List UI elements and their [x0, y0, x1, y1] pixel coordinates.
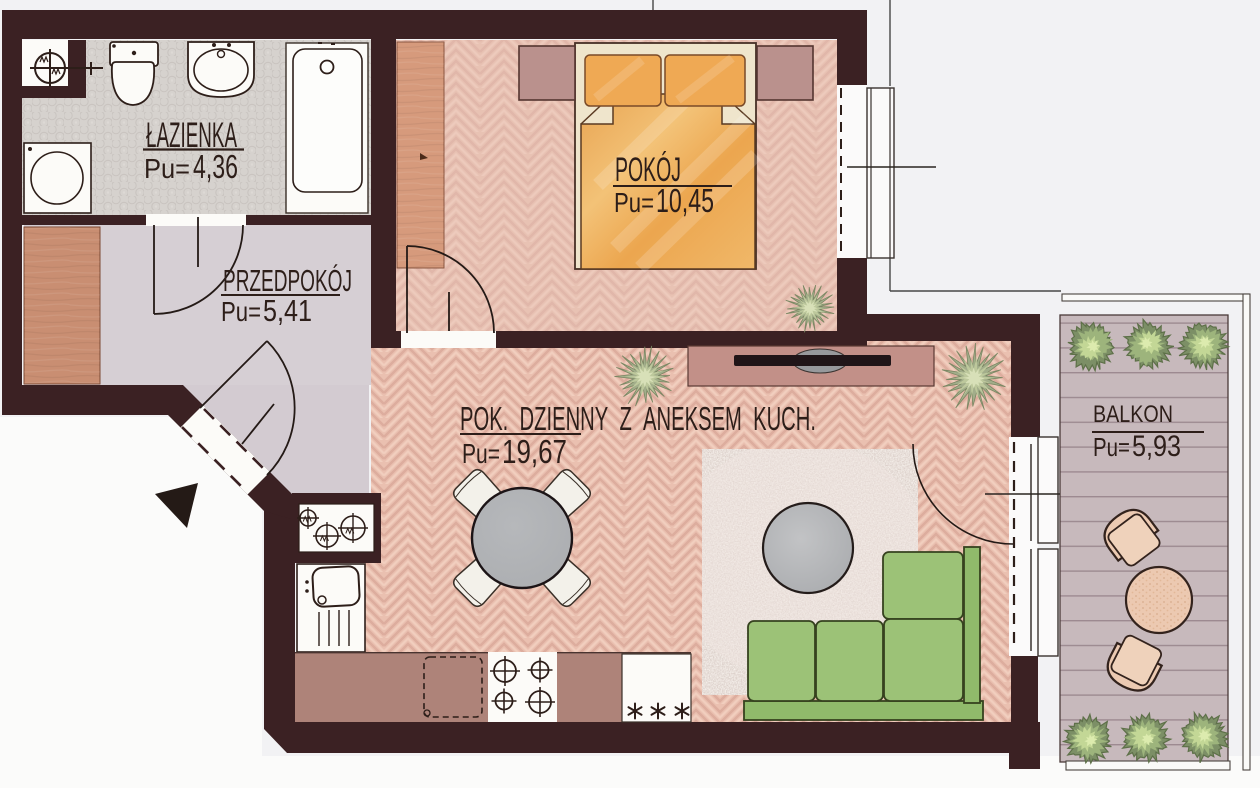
- svg-text:10,45: 10,45: [656, 182, 714, 219]
- svg-text:POK. DZIENNY Z ANEKSEM KUC: POK. DZIENNY Z ANEKSEM KUCH.: [460, 400, 816, 437]
- svg-text:BALKON: BALKON: [1093, 401, 1173, 428]
- svg-text:Pu=: Pu=: [462, 438, 500, 469]
- svg-text:Pu=: Pu=: [144, 153, 190, 184]
- svg-text:Pu=: Pu=: [1093, 432, 1130, 462]
- svg-text:19,67: 19,67: [502, 433, 567, 470]
- svg-text:Pu=: Pu=: [614, 187, 654, 218]
- svg-text:5,41: 5,41: [263, 293, 312, 328]
- svg-text:4,36: 4,36: [193, 148, 238, 185]
- svg-text:Pu=: Pu=: [221, 296, 261, 327]
- svg-text:5,93: 5,93: [1132, 430, 1181, 463]
